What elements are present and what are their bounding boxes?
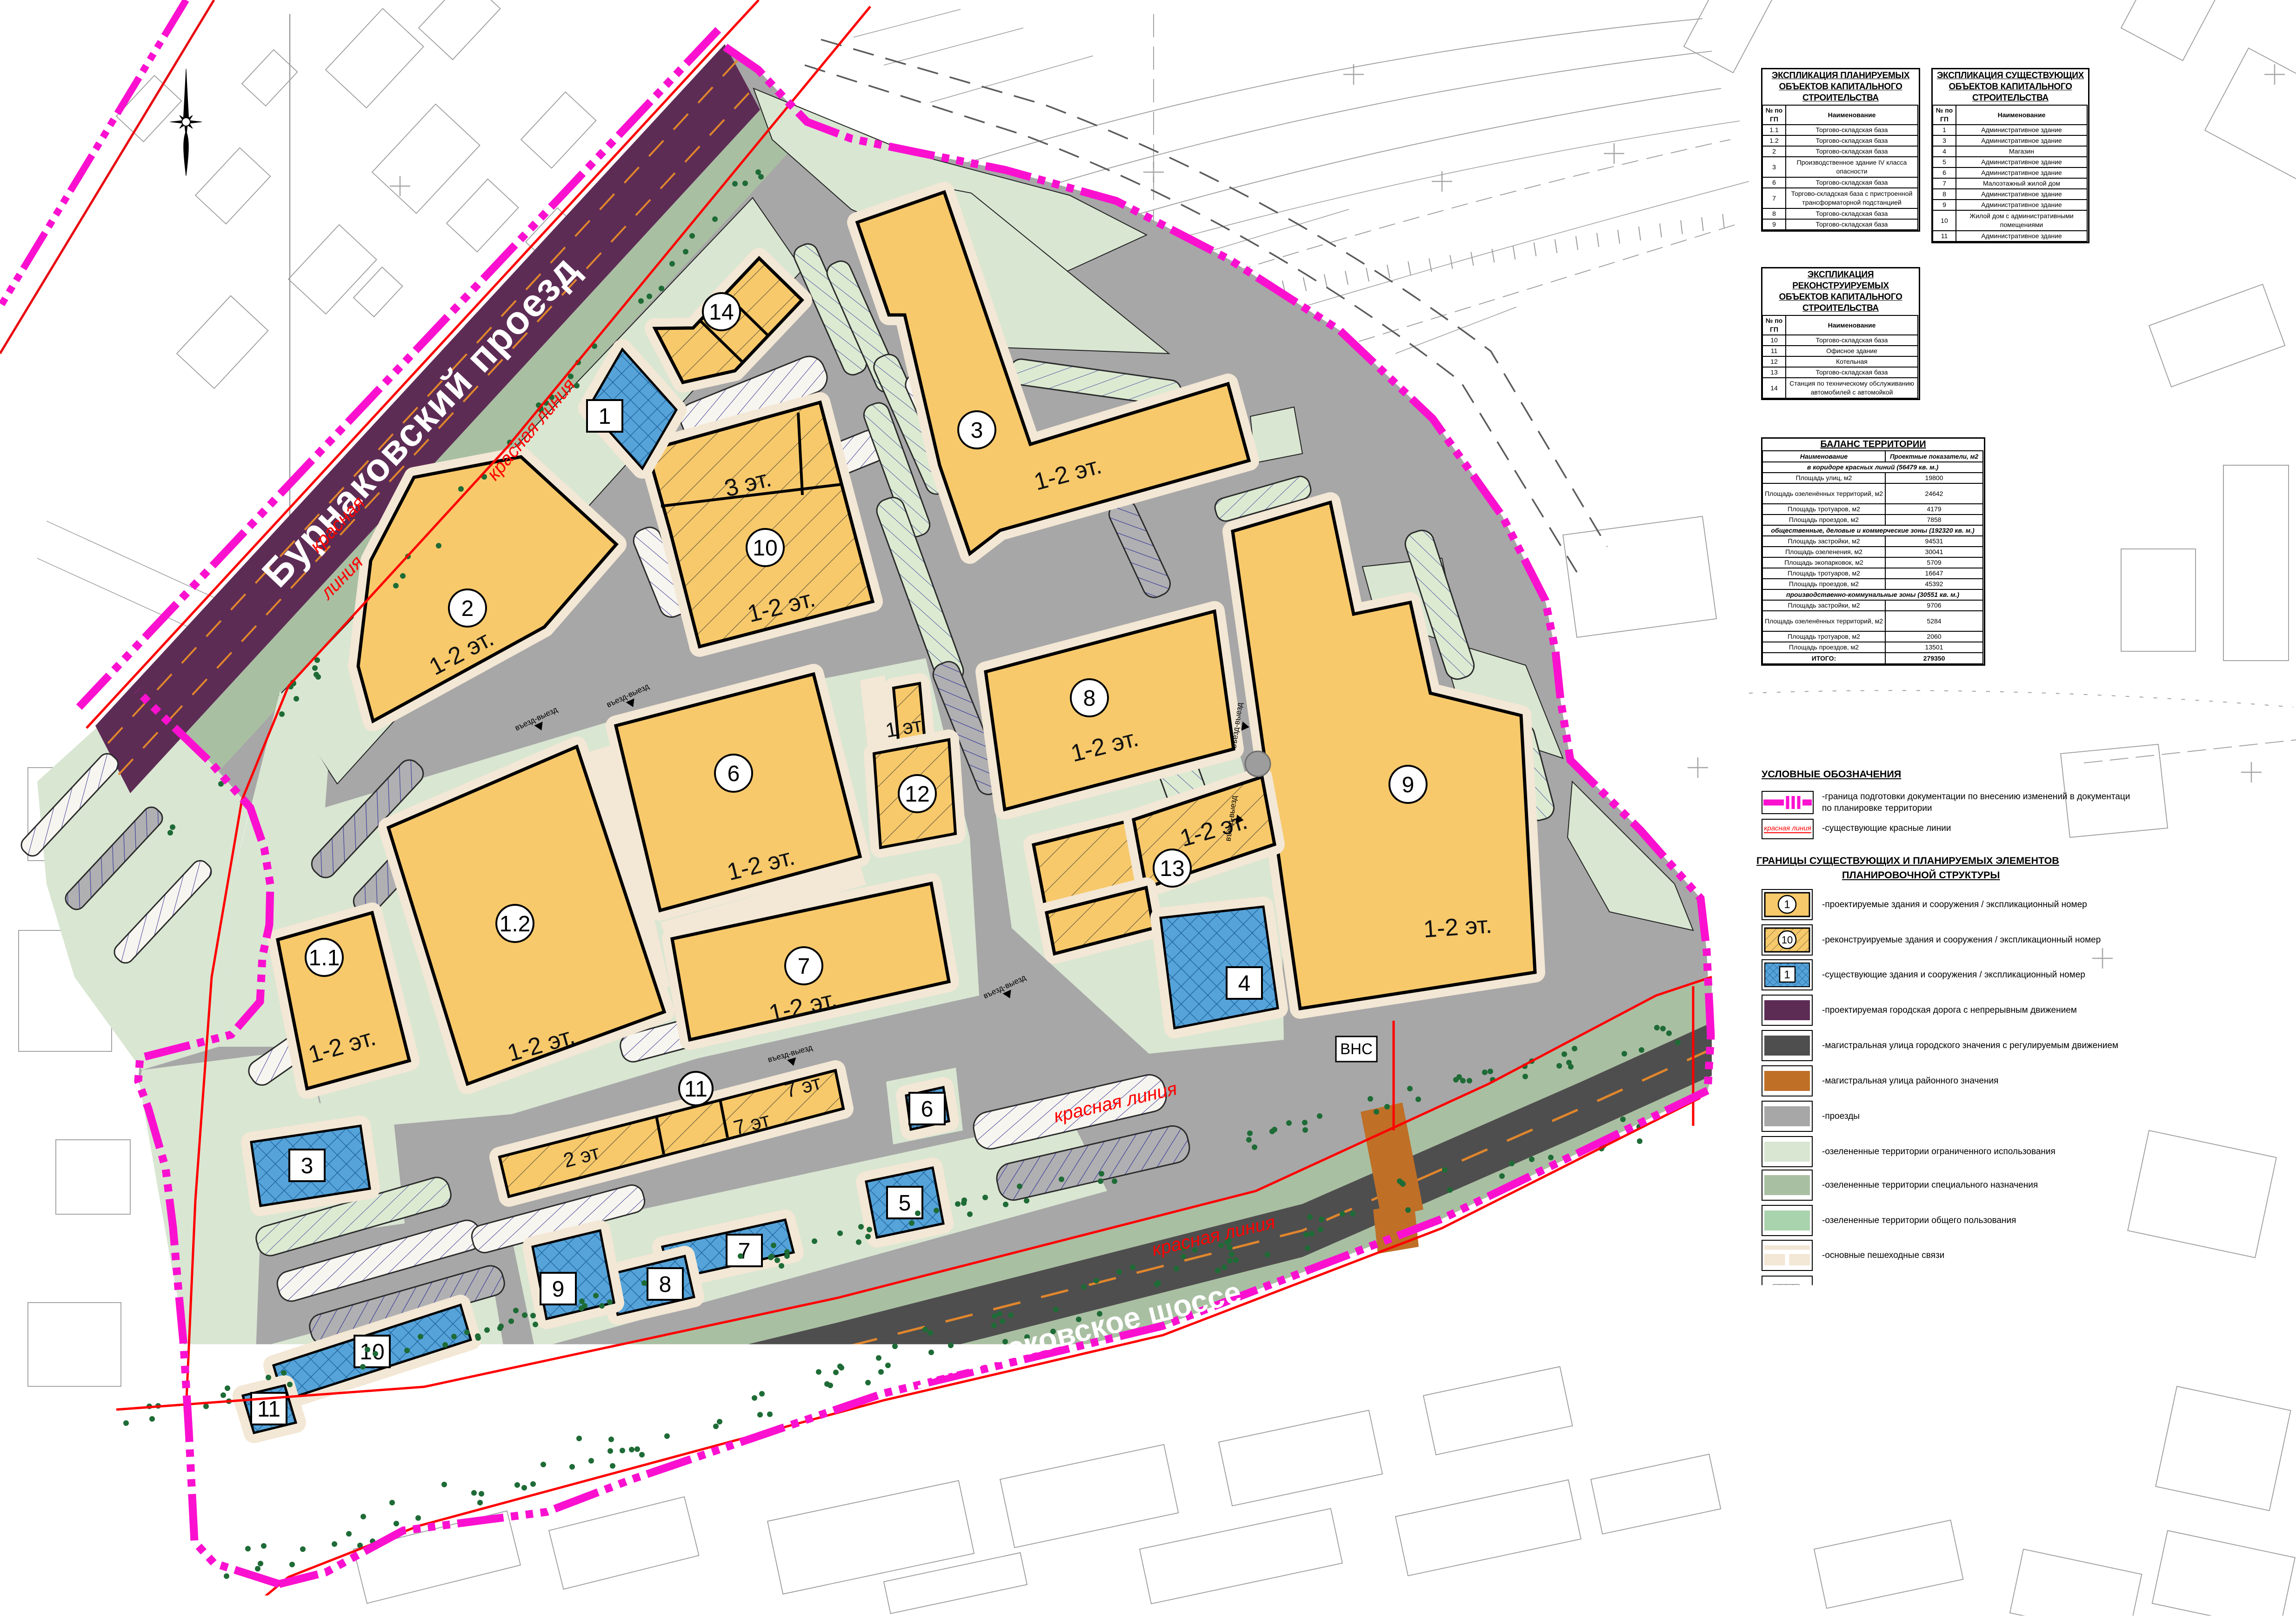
svg-text:5: 5: [899, 1191, 911, 1216]
svg-text:6: 6: [921, 1097, 934, 1122]
svg-text:8: 8: [1083, 686, 1096, 711]
svg-text:1.1: 1.1: [309, 946, 340, 970]
svg-text:2: 2: [461, 596, 474, 621]
svg-text:10: 10: [753, 536, 777, 561]
svg-text:12: 12: [905, 782, 929, 807]
svg-text:3: 3: [301, 1154, 314, 1178]
svg-text:11: 11: [257, 1397, 280, 1422]
svg-text:10: 10: [1782, 934, 1793, 946]
svg-text:1-2 эт.: 1-2 эт.: [1422, 911, 1493, 943]
svg-text:1: 1: [1784, 969, 1790, 981]
svg-text:13: 13: [1160, 856, 1184, 881]
svg-text:ВНС: ВНС: [1340, 1040, 1373, 1057]
svg-text:9: 9: [552, 1277, 565, 1302]
svg-text:3: 3: [971, 418, 983, 443]
svg-text:1.2: 1.2: [500, 912, 531, 936]
svg-text:7: 7: [738, 1239, 751, 1264]
svg-text:8: 8: [659, 1272, 672, 1297]
svg-text:4: 4: [1238, 971, 1251, 996]
svg-text:14: 14: [709, 300, 734, 325]
svg-text:11: 11: [684, 1077, 707, 1102]
svg-text:10: 10: [360, 1340, 384, 1364]
svg-text:1: 1: [599, 404, 611, 429]
svg-text:9: 9: [1402, 773, 1415, 797]
svg-text:1: 1: [1784, 898, 1790, 911]
svg-text:7: 7: [798, 954, 810, 979]
svg-text:6: 6: [728, 762, 740, 786]
